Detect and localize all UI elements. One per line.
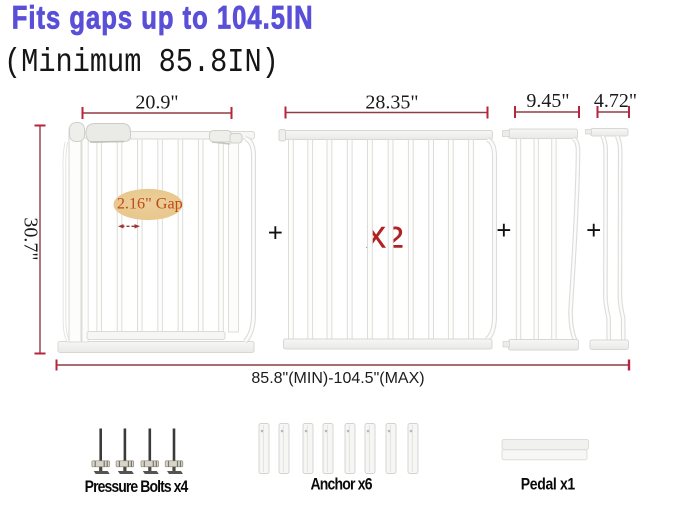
svg-text:4.72": 4.72" [594, 90, 637, 112]
svg-text:9.45": 9.45" [526, 90, 569, 112]
svg-text:+: + [496, 215, 511, 245]
svg-text:85.8"(MIN)-104.5"(MAX): 85.8"(MIN)-104.5"(MAX) [251, 370, 424, 387]
svg-text:20.9": 20.9" [135, 92, 178, 114]
svg-text:+: + [586, 215, 601, 245]
svg-text:2.16" Gap: 2.16" Gap [117, 195, 183, 213]
svg-text:Anchor x6: Anchor x6 [310, 475, 372, 493]
svg-text:28.35": 28.35" [365, 92, 418, 114]
svg-text:Pressure Bolts x4: Pressure Bolts x4 [85, 478, 189, 496]
svg-text:Fits gaps up to 104.5IN: Fits gaps up to 104.5IN [12, 1, 313, 36]
svg-text:(Minimum 85.8IN): (Minimum 85.8IN) [4, 44, 279, 81]
svg-text:30.7": 30.7" [20, 217, 42, 260]
svg-text:+: + [268, 218, 283, 248]
svg-text:Pedal x1: Pedal x1 [521, 475, 576, 493]
